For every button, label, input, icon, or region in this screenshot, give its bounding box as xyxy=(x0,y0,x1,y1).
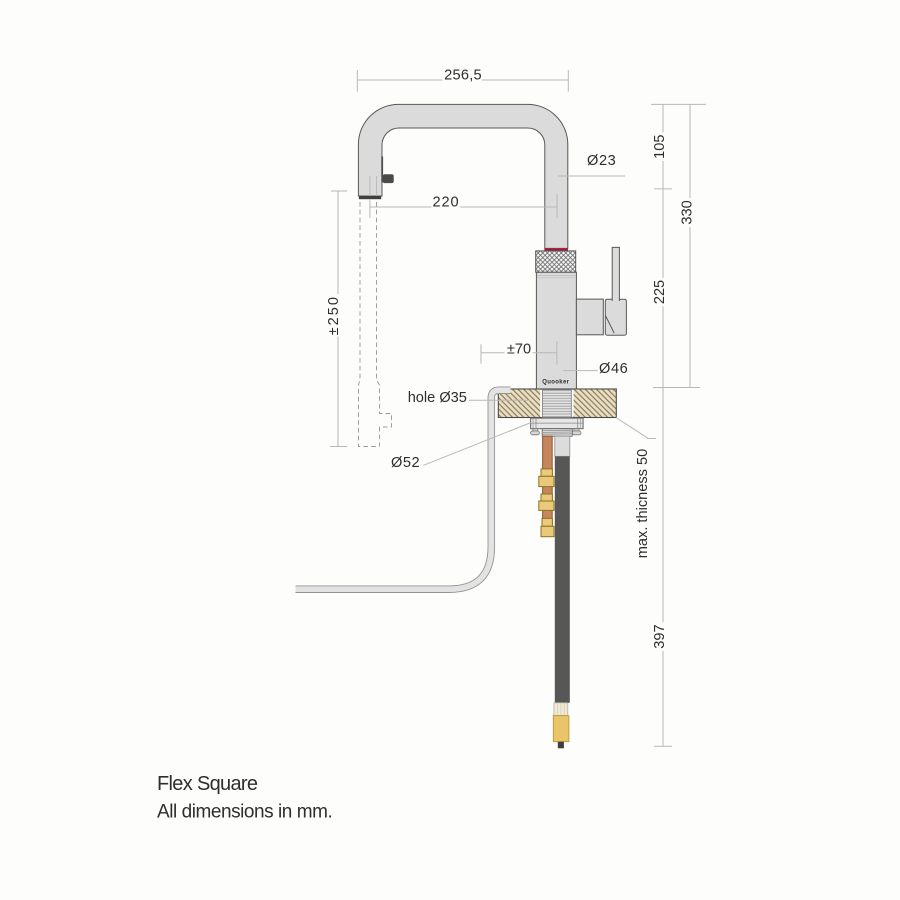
svg-text:Ø52: Ø52 xyxy=(391,455,420,471)
svg-text:±250: ±250 xyxy=(326,295,342,335)
svg-text:All dimensions in mm.: All dimensions in mm. xyxy=(157,802,332,823)
svg-text:105: 105 xyxy=(652,135,668,159)
svg-text:220: 220 xyxy=(432,195,459,211)
svg-text:±70: ±70 xyxy=(507,341,531,357)
svg-text:397: 397 xyxy=(652,624,668,648)
svg-text:Quooker: Quooker xyxy=(542,380,569,386)
svg-text:Flex Square: Flex Square xyxy=(157,773,258,795)
svg-text:225: 225 xyxy=(652,280,668,304)
svg-text:max. thicness 50: max. thicness 50 xyxy=(635,449,651,559)
svg-text:Ø23: Ø23 xyxy=(587,153,616,169)
svg-text:hole Ø35: hole Ø35 xyxy=(408,390,467,406)
svg-text:256,5: 256,5 xyxy=(444,68,482,84)
svg-text:330: 330 xyxy=(680,200,696,224)
svg-text:Ø46: Ø46 xyxy=(599,361,628,377)
